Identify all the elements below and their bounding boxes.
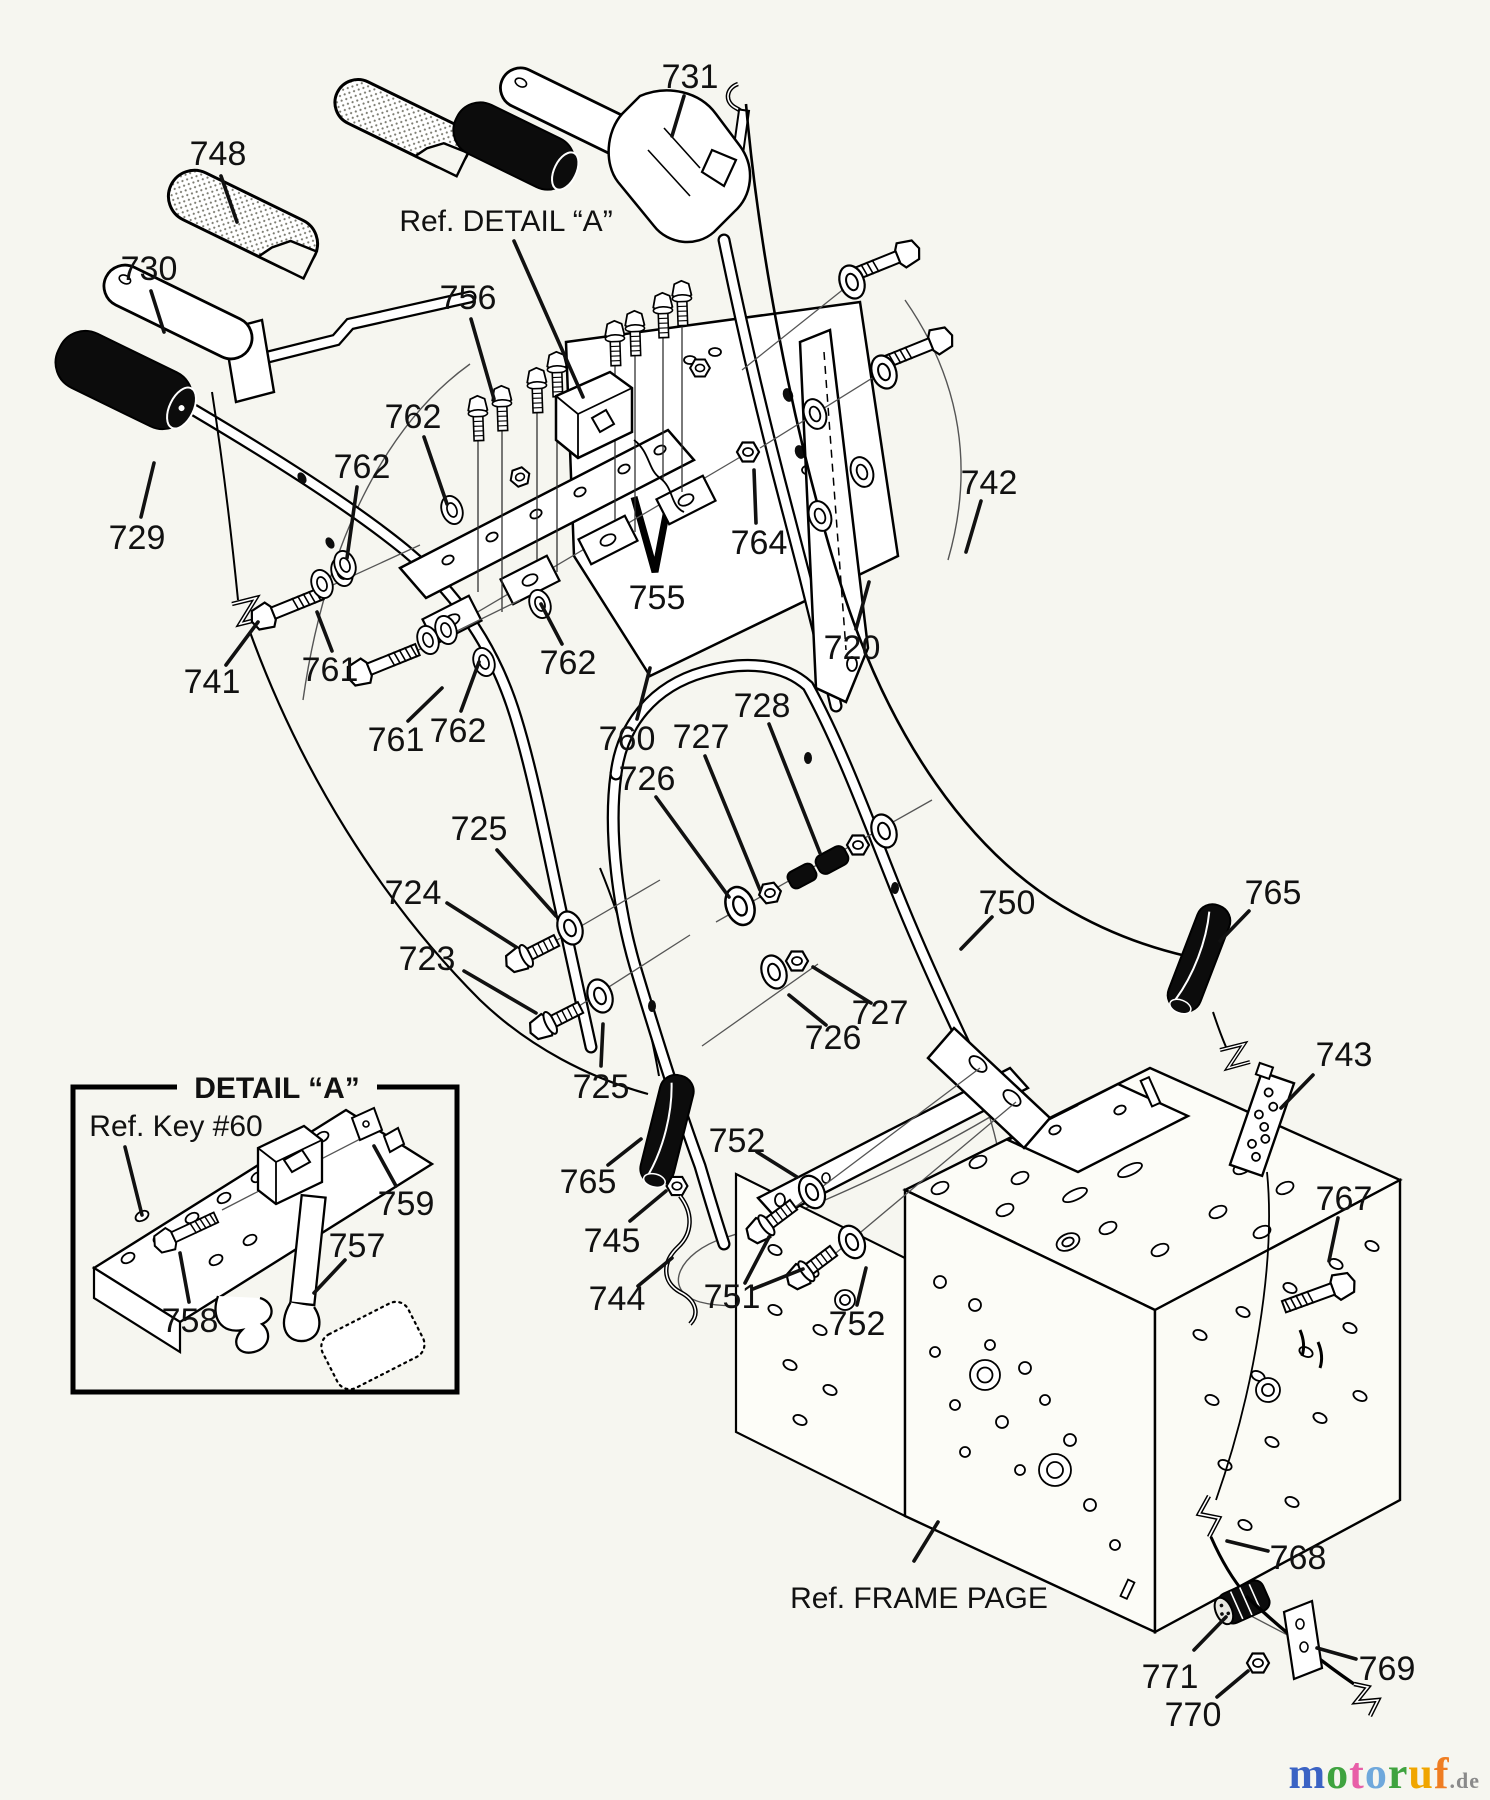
- part-label-25-723: 723: [399, 940, 456, 978]
- part-label-37-Ref-FRAME-PAGE: Ref. FRAME PAGE: [790, 1582, 1048, 1615]
- part-label-19-727: 727: [673, 718, 730, 756]
- motoruf-logo[interactable]: motoruf.de: [1289, 1752, 1480, 1796]
- part-label-3-729: 729: [109, 519, 166, 557]
- part-label-22-765: 765: [1245, 874, 1302, 912]
- part-label-14-755: 755: [629, 579, 686, 617]
- part-label-16-720: 720: [824, 629, 881, 667]
- part-label-35-752: 752: [829, 1305, 886, 1343]
- logo-letter: t: [1349, 1749, 1365, 1798]
- part-label-1-748: 748: [190, 135, 247, 173]
- logo-letter: f: [1434, 1749, 1450, 1798]
- part-label-32-745: 745: [584, 1222, 641, 1260]
- nut-727b: [786, 952, 808, 971]
- part-label-2-730: 730: [121, 250, 178, 288]
- part-label-4-Ref-DETAIL-A-: Ref. DETAIL “A”: [399, 205, 612, 238]
- part-label-15-764: 764: [731, 524, 788, 562]
- part-label-41-769: 769: [1359, 1650, 1416, 1688]
- part-label-7-762: 762: [334, 448, 391, 486]
- logo-word: motoruf: [1289, 1749, 1450, 1798]
- exploded-parts-diagram: 731748730729Ref. DETAIL “A”7567627627617…: [0, 0, 1490, 1800]
- part-label-17-742: 742: [961, 464, 1018, 502]
- part-label-0-731: 731: [662, 58, 719, 96]
- part-label-42-DETAIL-A-: DETAIL “A”: [194, 1072, 360, 1105]
- diagram-page: 731748730729Ref. DETAIL “A”7567627627617…: [0, 0, 1490, 1800]
- logo-letter: m: [1289, 1749, 1327, 1798]
- part-label-44-759: 759: [378, 1185, 435, 1223]
- nut: [690, 359, 710, 376]
- leader-line-725: [601, 1024, 603, 1066]
- part-label-40-770: 770: [1165, 1696, 1222, 1734]
- part-label-5-756: 756: [440, 279, 497, 317]
- part-label-11-762: 762: [430, 712, 487, 750]
- part-label-24-724: 724: [385, 874, 442, 912]
- logo-letter: o: [1326, 1749, 1349, 1798]
- part-label-13-760: 760: [599, 720, 656, 758]
- part-label-46-758: 758: [162, 1302, 219, 1340]
- part-label-8-761: 761: [302, 651, 359, 689]
- part-label-21-750: 750: [979, 884, 1036, 922]
- part-label-20-726: 726: [619, 760, 676, 798]
- part-label-18-728: 728: [734, 687, 791, 725]
- part-label-38-768: 768: [1270, 1539, 1327, 1577]
- part-label-30-752: 752: [709, 1122, 766, 1160]
- part-label-9-741: 741: [184, 663, 241, 701]
- part-label-31-765: 765: [560, 1163, 617, 1201]
- part-label-28-726: 726: [805, 1019, 862, 1057]
- leader-line-764: [754, 470, 756, 523]
- part-label-43-Ref-Key-#60: Ref. Key #60: [89, 1110, 262, 1143]
- nut-764: [737, 443, 759, 462]
- logo-letter: o: [1365, 1749, 1388, 1798]
- part-label-29-743: 743: [1316, 1036, 1373, 1074]
- nut-770: [1247, 1654, 1269, 1673]
- nut-745: [667, 1177, 688, 1195]
- part-label-12-762: 762: [540, 644, 597, 682]
- part-label-26-725: 725: [573, 1068, 630, 1106]
- logo-letter: r: [1388, 1749, 1409, 1798]
- part-label-33-744: 744: [589, 1280, 646, 1318]
- part-label-34-751: 751: [704, 1278, 761, 1316]
- part-label-10-761: 761: [368, 721, 425, 759]
- part-label-39-771: 771: [1142, 1658, 1199, 1696]
- part-label-23-725: 725: [451, 810, 508, 848]
- part-label-6-762: 762: [385, 398, 442, 436]
- part-label-45-757: 757: [329, 1227, 386, 1265]
- logo-letter: u: [1408, 1749, 1433, 1798]
- logo-domain-suffix: .de: [1450, 1768, 1481, 1793]
- part-label-36-767: 767: [1316, 1180, 1373, 1218]
